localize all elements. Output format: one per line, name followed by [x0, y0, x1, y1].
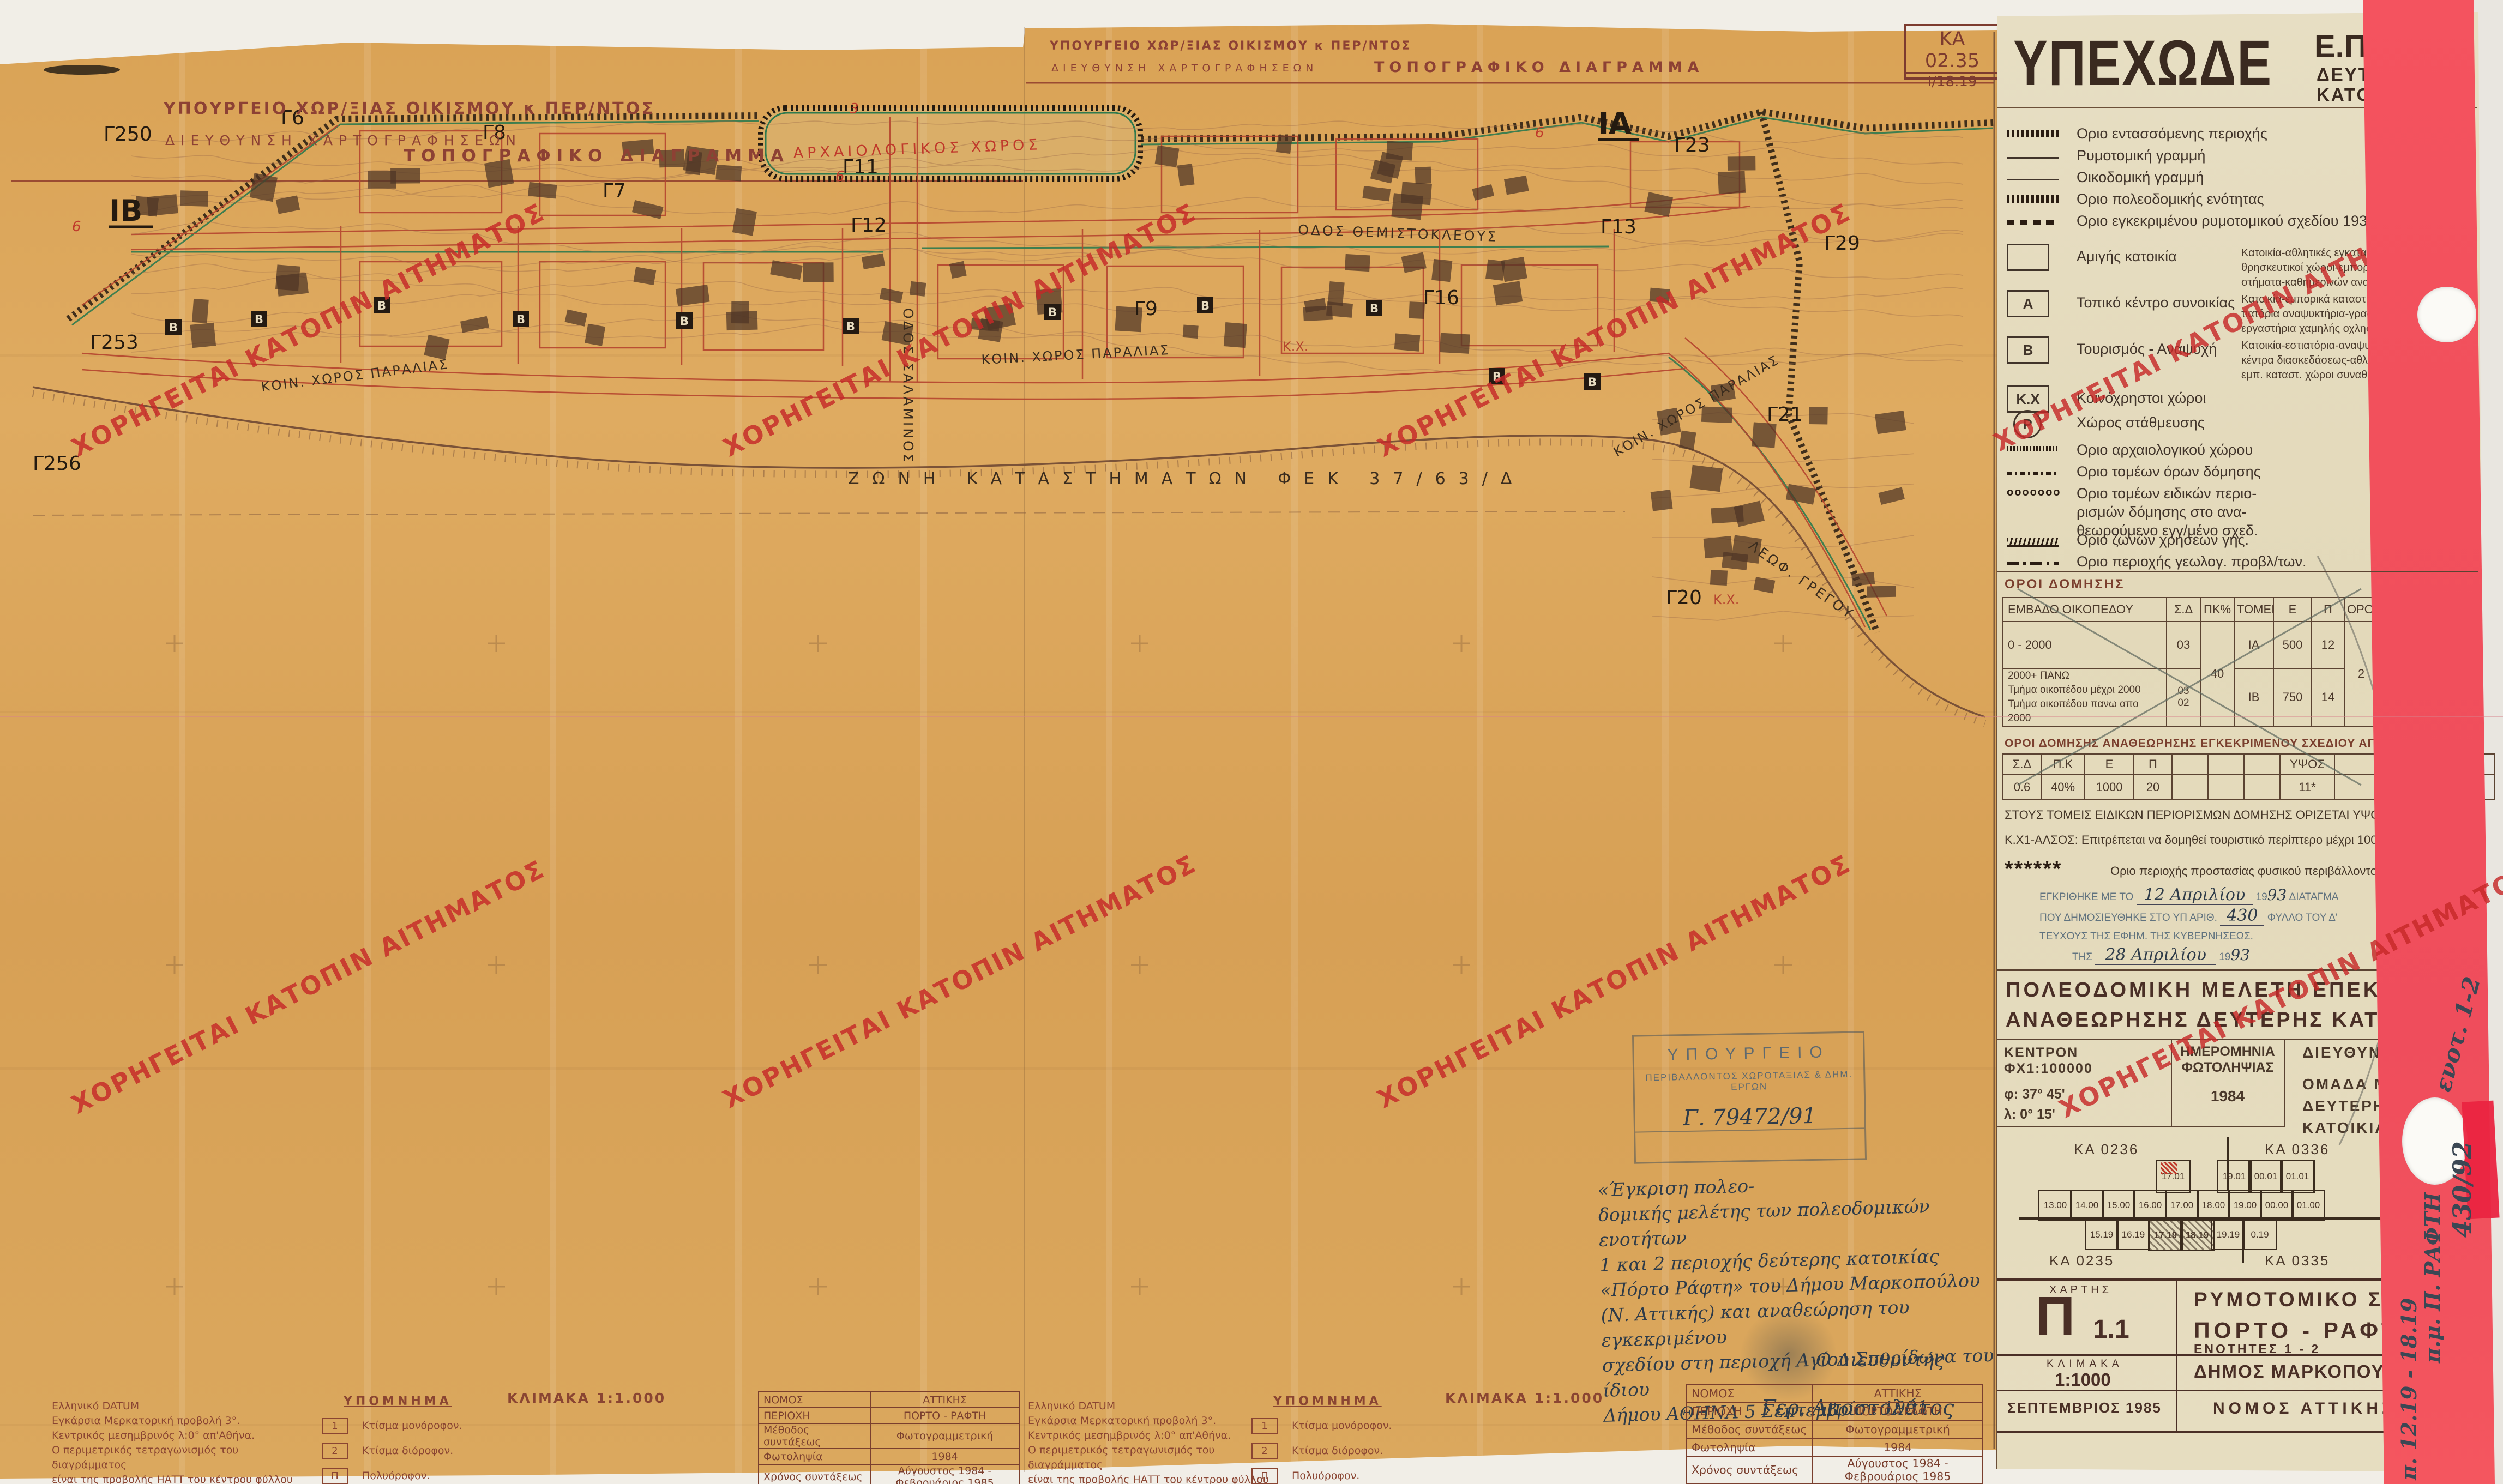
punch-hole-top [2417, 287, 2476, 342]
strip-handwriting-range: π. 12.19 - 18.19 [2397, 1298, 2421, 1481]
legend-bottom-rule [1997, 571, 2478, 572]
strip-handwriting-area: π.μ. Π. ΡΑΦΤΗ [2420, 1192, 2445, 1363]
scan-artifact-line [0, 716, 2503, 717]
strip-handwriting-number: 430/92 [2447, 1141, 2477, 1238]
pen-marks-overlay [0, 0, 2503, 1484]
scanned-plan-sheet: Γ250Γ253Γ256Γ6Γ8Γ7Γ12Γ11Γ9Γ16Γ13Γ23Γ29Γ2… [0, 0, 2503, 1484]
